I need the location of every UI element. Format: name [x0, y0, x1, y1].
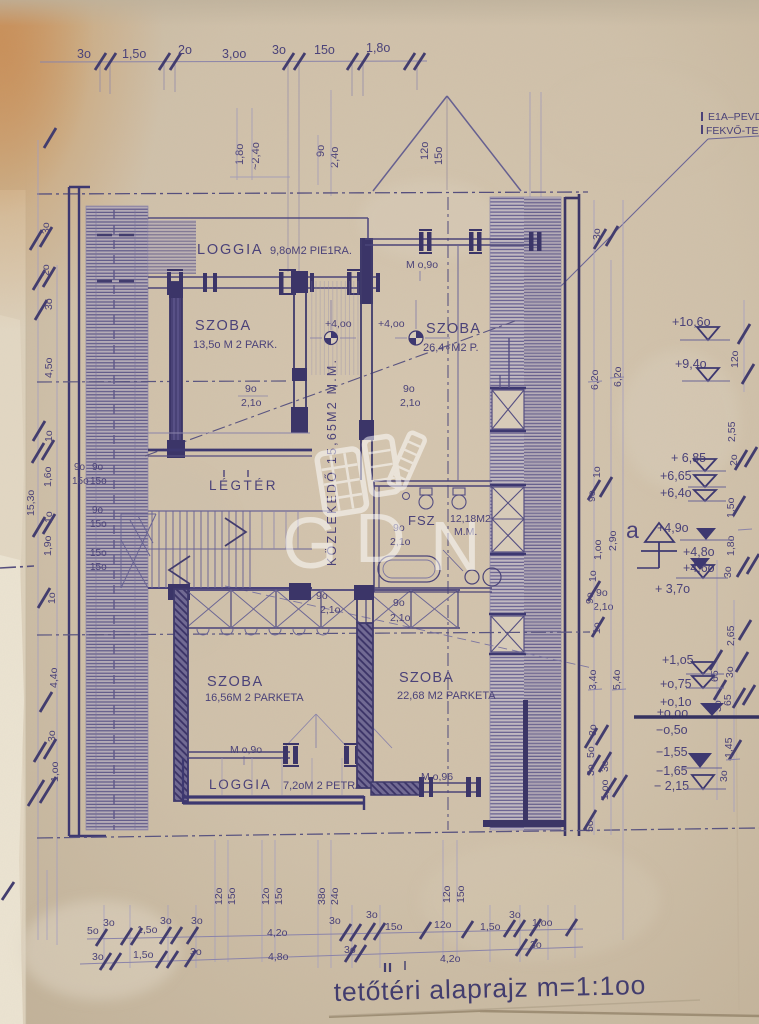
svg-text:3o: 3o [92, 951, 104, 963]
svg-text:5o: 5o [584, 820, 596, 832]
svg-text:9o: 9o [92, 462, 104, 473]
svg-text:9o: 9o [315, 145, 327, 157]
svg-text:+4,8o: +4,8o [683, 545, 715, 559]
svg-text:4,4o: 4,4o [48, 667, 60, 688]
svg-text:3o: 3o [591, 228, 603, 240]
svg-text:+ 6,85: + 6,85 [671, 451, 706, 465]
svg-text:3o: 3o [43, 298, 55, 310]
svg-text:a: a [626, 517, 639, 543]
svg-text:LOGGIA: LOGGIA [209, 777, 272, 792]
svg-text:2,9o: 2,9o [607, 530, 619, 551]
svg-text:2,55: 2,55 [726, 421, 738, 442]
svg-text:1,45: 1,45 [723, 737, 735, 758]
svg-text:9o: 9o [74, 462, 86, 473]
svg-text:SZOBA: SZOBA [195, 318, 252, 334]
svg-text:3,4o: 3,4o [587, 669, 599, 690]
svg-text:M o,96: M o,96 [421, 771, 453, 783]
svg-text:3o: 3o [77, 47, 91, 61]
svg-text:9,8oM2 PIE1RA.: 9,8oM2 PIE1RA. [270, 245, 352, 257]
svg-text:1,oo: 1,oo [599, 779, 611, 800]
svg-text:4,2o: 4,2o [440, 953, 461, 965]
svg-text:SZOBA: SZOBA [399, 670, 454, 686]
svg-text:+4,oo: +4,oo [325, 318, 352, 330]
svg-text:+4,9o: +4,9o [657, 521, 689, 535]
svg-text:3o: 3o [329, 915, 341, 927]
svg-text:9o: 9o [245, 383, 257, 395]
svg-text:12o: 12o [260, 887, 272, 905]
svg-text:3o: 3o [366, 909, 378, 921]
svg-text:15o: 15o [90, 476, 107, 487]
svg-text:+ 3,7o: + 3,7o [655, 582, 690, 596]
svg-text:−1,55: −1,55 [656, 745, 688, 759]
svg-text:5o: 5o [87, 925, 99, 937]
svg-text:12o: 12o [213, 887, 225, 905]
svg-text:FEKVŐ-TE: FEKVŐ-TE [706, 123, 759, 137]
svg-text:2,1o: 2,1o [593, 601, 614, 613]
svg-text:1o: 1o [587, 570, 599, 582]
svg-text:3o: 3o [509, 909, 521, 921]
svg-text:4,8o: 4,8o [268, 951, 289, 963]
svg-text:4,5o: 4,5o [43, 357, 55, 378]
svg-text:M o,9o: M o,9o [406, 259, 438, 271]
svg-text:15o: 15o [90, 548, 107, 559]
svg-text:1,8o: 1,8o [366, 41, 390, 55]
svg-text:+6,65: +6,65 [660, 469, 692, 483]
svg-text:15o: 15o [273, 887, 285, 905]
svg-text:3o: 3o [718, 770, 730, 782]
svg-text:1,9o: 1,9o [42, 535, 54, 556]
svg-text:3o: 3o [160, 915, 172, 927]
svg-text:38o: 38o [316, 887, 328, 905]
svg-text:6,2o: 6,2o [589, 369, 601, 390]
svg-text:3o: 3o [722, 566, 734, 578]
svg-text:E1A–PEVD: E1A–PEVD [708, 111, 759, 123]
svg-text:7,2oM 2 PETRA: 7,2oM 2 PETRA [283, 780, 363, 792]
svg-text:13,5o M 2 PARK.: 13,5o M 2 PARK. [193, 339, 277, 351]
svg-text:+o,75: +o,75 [660, 677, 692, 691]
svg-text:1o: 1o [591, 622, 603, 634]
svg-text:SZOBA: SZOBA [426, 321, 481, 337]
svg-text:1,oo: 1,oo [49, 761, 61, 782]
svg-text:1,5o: 1,5o [133, 949, 154, 961]
svg-text:15o: 15o [226, 887, 238, 905]
svg-text:− 2,15: − 2,15 [654, 779, 689, 793]
svg-text:3o: 3o [190, 946, 202, 958]
svg-text:9o: 9o [403, 383, 415, 395]
svg-text:1,oo: 1,oo [592, 539, 604, 560]
svg-text:D: D [355, 499, 406, 577]
svg-text:1o: 1o [591, 466, 603, 478]
svg-text:SZOBA: SZOBA [207, 674, 264, 690]
svg-text:22,68 M2 PARKETA: 22,68 M2 PARKETA [397, 690, 496, 702]
svg-text:9o: 9o [584, 592, 596, 604]
svg-text:N: N [430, 507, 481, 585]
svg-text:+1,o5: +1,o5 [662, 653, 694, 667]
svg-text:3o: 3o [344, 944, 356, 956]
svg-text:5o: 5o [585, 746, 597, 758]
svg-text:3o: 3o [191, 915, 203, 927]
svg-text:15o: 15o [455, 885, 467, 903]
svg-text:24o: 24o [329, 887, 341, 905]
svg-text:12o: 12o [441, 885, 453, 903]
svg-text:G: G [282, 504, 338, 584]
svg-text:M o,9o: M o,9o [230, 744, 262, 756]
svg-text:2,1o: 2,1o [390, 612, 411, 624]
svg-text:15o: 15o [433, 147, 445, 165]
svg-text:3o: 3o [587, 724, 599, 736]
svg-text:15o: 15o [90, 519, 107, 530]
svg-text:2o: 2o [40, 264, 52, 276]
svg-text:2,1o: 2,1o [320, 604, 341, 616]
svg-text:15o: 15o [385, 921, 403, 933]
svg-text:12o: 12o [434, 919, 452, 931]
svg-text:LÉGTÉR: LÉGTÉR [209, 478, 278, 493]
svg-text:2,65: 2,65 [725, 625, 737, 646]
svg-text:3o: 3o [103, 917, 115, 929]
svg-text:2,1o: 2,1o [241, 397, 262, 409]
svg-text:9o: 9o [316, 590, 328, 602]
svg-text:LOGGIA: LOGGIA [197, 242, 263, 258]
svg-text:1,6o: 1,6o [42, 466, 54, 487]
svg-text:15,3o: 15,3o [25, 490, 37, 516]
svg-text:1,8o: 1,8o [725, 535, 737, 556]
svg-text:3,oo: 3,oo [222, 47, 246, 61]
svg-text:15o: 15o [314, 43, 335, 57]
svg-text:1,5o: 1,5o [122, 47, 146, 61]
svg-text:9o: 9o [92, 505, 104, 516]
svg-text:9o: 9o [393, 597, 405, 609]
svg-text:3o: 3o [585, 764, 597, 776]
svg-text:12o: 12o [419, 142, 431, 160]
svg-text:1,5o: 1,5o [725, 497, 737, 518]
svg-text:26,4∘M2 P.: 26,4∘M2 P. [423, 342, 479, 354]
svg-text:2o: 2o [178, 43, 192, 57]
svg-text:5,4o: 5,4o [611, 669, 623, 690]
svg-text:3o: 3o [724, 666, 736, 678]
svg-text:3o: 3o [272, 43, 286, 57]
svg-text:1,oo: 1,oo [532, 917, 553, 929]
svg-text:2,1o: 2,1o [400, 397, 421, 409]
svg-text:3o: 3o [40, 222, 52, 234]
svg-text:3o: 3o [46, 730, 58, 742]
svg-text:1,8o: 1,8o [234, 144, 246, 165]
svg-text:2o: 2o [728, 454, 740, 466]
svg-text:−1,65: −1,65 [656, 764, 688, 778]
svg-text:9o: 9o [586, 490, 598, 502]
svg-text:9o: 9o [596, 587, 608, 599]
svg-text:−o,5o: −o,5o [656, 723, 688, 737]
svg-text:15o: 15o [90, 562, 107, 573]
svg-text:1,5o: 1,5o [137, 924, 158, 936]
svg-text:15o: 15o [72, 476, 89, 487]
svg-text:1o: 1o [43, 511, 55, 523]
svg-text:+4,oo: +4,oo [378, 318, 405, 330]
svg-text:3o: 3o [599, 760, 611, 772]
svg-text:1o: 1o [46, 592, 58, 604]
svg-text:+6,4o: +6,4o [660, 486, 692, 500]
svg-text:1,5o: 1,5o [480, 921, 501, 933]
svg-text:12o: 12o [729, 350, 741, 368]
svg-text:16,56M 2 PARKETA: 16,56M 2 PARKETA [205, 692, 304, 704]
svg-text:4,2o: 4,2o [267, 927, 288, 939]
svg-text:1o: 1o [43, 430, 55, 442]
svg-text:3o: 3o [530, 939, 542, 951]
